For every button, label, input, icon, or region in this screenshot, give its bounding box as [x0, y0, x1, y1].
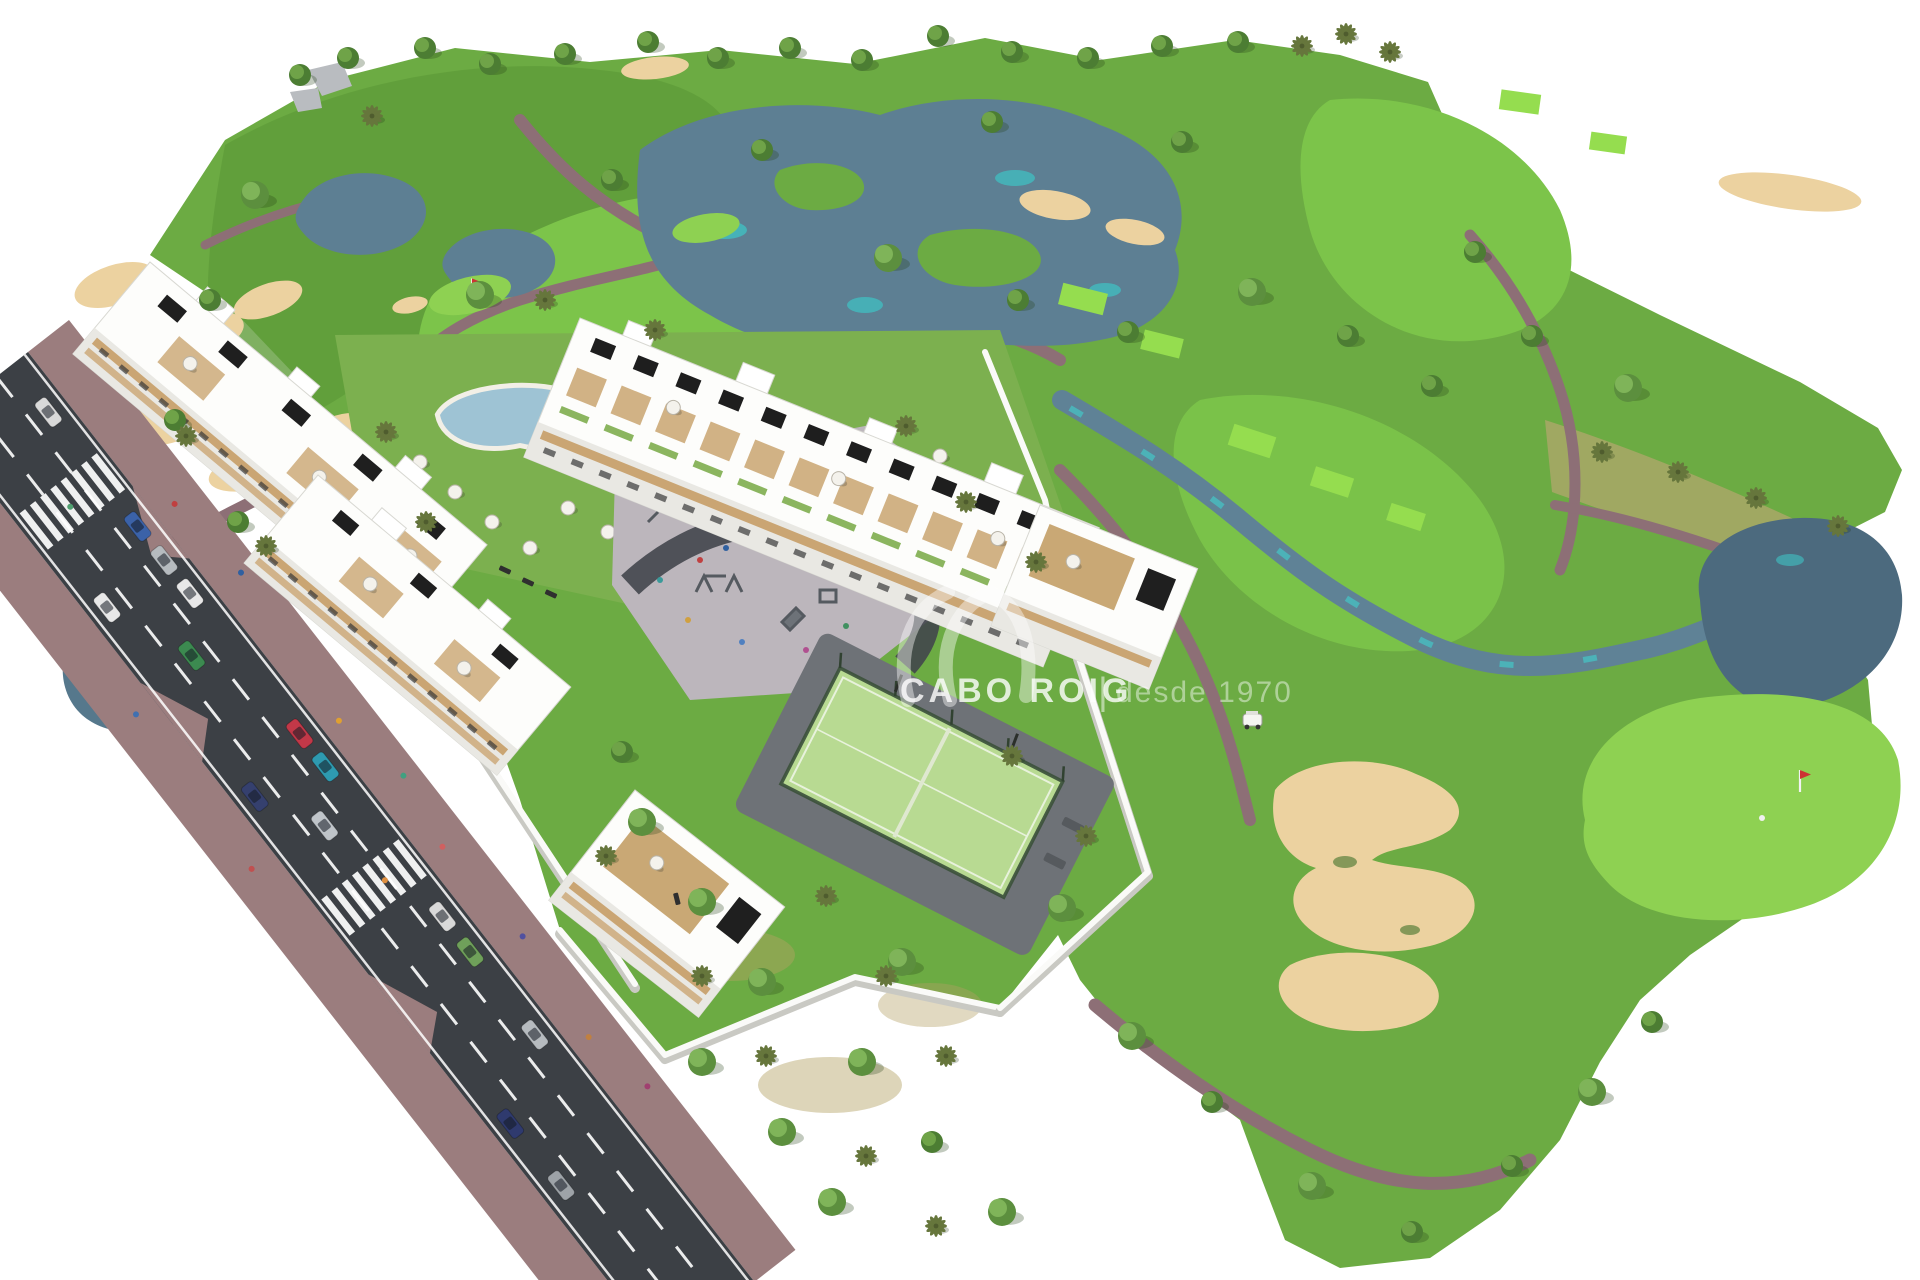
palm-icon [925, 1215, 949, 1237]
person-dot [803, 647, 809, 653]
tree-icon [1151, 35, 1179, 57]
garden-tree-icon [848, 1048, 884, 1076]
person-dot [843, 623, 849, 629]
tee-box [1499, 89, 1541, 114]
tree-icon [554, 43, 582, 65]
tee-box [1589, 132, 1627, 155]
tree-icon [227, 511, 255, 533]
palm-icon [1335, 23, 1359, 45]
tree-icon [988, 1198, 1024, 1226]
person-dot [697, 557, 703, 563]
scene-svg: CABO ROIG | desde 1970 [0, 0, 1920, 1280]
bunker-shadow-bush [1400, 925, 1420, 935]
pond-right [1699, 518, 1902, 708]
garden-tree-icon [688, 1048, 724, 1076]
tree-icon [337, 47, 365, 69]
bunker-shadow-bush [1333, 856, 1357, 868]
tree-icon [1578, 1078, 1614, 1106]
palm-icon [855, 1145, 879, 1167]
garden-tree-icon [818, 1188, 854, 1216]
tree-icon [779, 37, 807, 59]
tree-icon [1227, 31, 1255, 53]
teal-shallow [1776, 554, 1804, 566]
putting-green-right [1582, 694, 1900, 920]
palm-icon [1379, 41, 1403, 63]
tree-icon [921, 1131, 949, 1153]
person-dot [657, 577, 663, 583]
palm-icon [755, 1045, 779, 1067]
teal-shallow [995, 170, 1035, 186]
tree-icon [414, 37, 442, 59]
palm-icon [935, 1045, 959, 1067]
tree-icon [637, 31, 665, 53]
bunker [1716, 165, 1863, 219]
golfer [1759, 815, 1765, 821]
render-canvas: CABO ROIG | desde 1970 [0, 0, 1920, 1280]
tree-icon [851, 49, 879, 71]
person-dot [685, 617, 691, 623]
teal-shallow [847, 297, 883, 313]
person-dot [739, 639, 745, 645]
garden-tree-icon [768, 1118, 804, 1146]
tree-icon [1641, 1011, 1669, 1033]
tree-icon [1077, 47, 1105, 69]
tree-icon [927, 25, 955, 47]
brand-tagline: desde 1970 [1116, 676, 1293, 709]
brand-separator: | [1098, 671, 1110, 713]
person-dot [723, 545, 729, 551]
